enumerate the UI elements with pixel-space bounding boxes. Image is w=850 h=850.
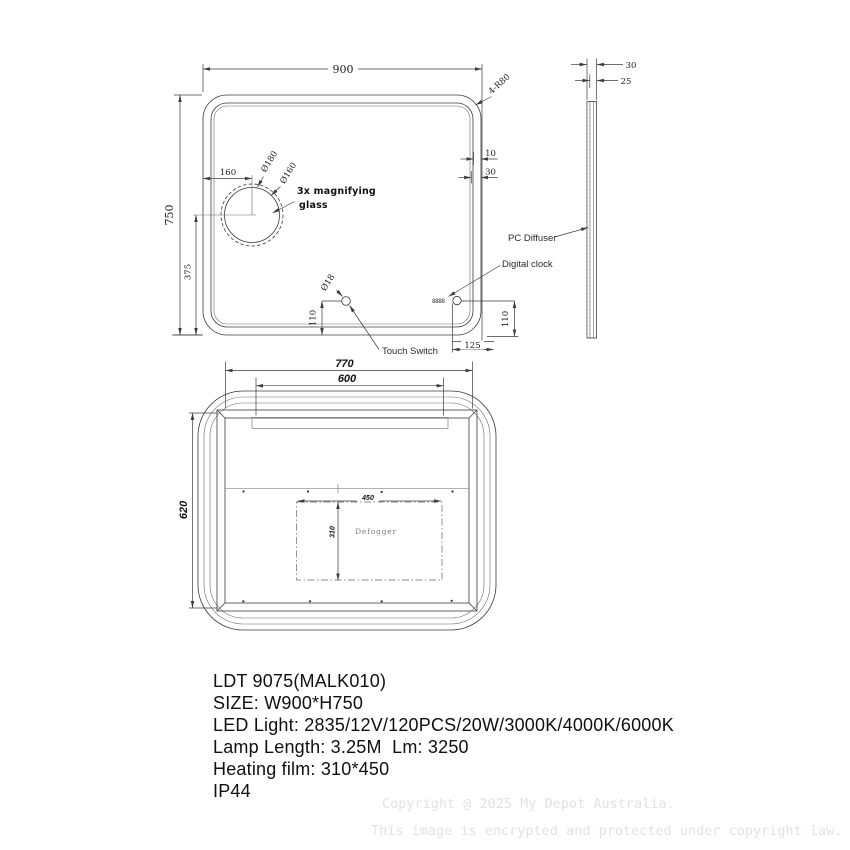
svg-text:PC Diffuser: PC Diffuser [508,233,556,244]
dim-edge-30: 30 [459,168,498,184]
defogger-label: Defogger [355,527,397,536]
svg-text:125: 125 [464,341,480,351]
svg-text:Touch Switch: Touch Switch [382,346,438,357]
dim-160: 160 [203,168,252,179]
spec-model: LDT 9075(MALK010) [213,671,386,693]
side-view-drawing: 30 25 PC Diffuser [508,59,636,339]
back-frame-outer [217,410,477,611]
back-frame-inner [225,418,469,603]
defogger-area [297,502,443,580]
watermark-line1: Copyright @ 2025 My Depot Australia. [382,796,675,812]
spec-ip: IP44 [213,781,251,803]
spec-heating: Heating film: 310*450 [213,759,389,781]
svg-text:25: 25 [621,77,632,87]
svg-text:4-R80: 4-R80 [487,72,513,96]
dim-depth-25: 25 [575,75,631,89]
back-view-drawing: 620 450 310 Defogger [178,391,496,630]
clock-display: 8888 [432,298,445,305]
screw-dots-bottom [242,600,453,603]
svg-text:310: 310 [330,526,337,538]
svg-text:600: 600 [338,373,357,385]
svg-text:110: 110 [309,310,319,326]
back-outline-inner [210,403,484,618]
svg-text:900: 900 [333,63,354,76]
dim-310: 310 [330,502,339,581]
svg-text:750: 750 [163,205,176,226]
front-view-drawing: 8888 900 750 4-R80 160 375 [163,62,553,357]
back-outline-mid [204,397,490,624]
svg-text:Digital clock: Digital clock [502,259,553,270]
touch-switch-label: Touch Switch [350,306,438,358]
digital-clock-label: Digital clock [449,259,553,297]
svg-text:110: 110 [501,311,511,327]
svg-text:10: 10 [485,149,496,159]
touch-dia-label: Ø18 [319,272,343,296]
spec-lamp: Lamp Length: 3.25M Lm: 3250 [213,737,469,759]
svg-text:30: 30 [485,168,496,178]
touch-switch-dot [342,297,351,306]
screw-dots-mid [242,490,453,493]
svg-text:30: 30 [626,61,637,71]
pc-diffuser-label: PC Diffuser [508,228,588,245]
svg-text:375: 375 [184,264,194,280]
dia-160-label: Ø160 [271,160,299,195]
magnifier-label: 3x magnifying glass [273,186,376,213]
digital-clock-dot [453,296,461,304]
svg-text:Ø160: Ø160 [278,160,300,186]
spec-size: SIZE: W900*H750 [213,693,363,715]
back-mid-line [225,484,469,494]
technical-drawing-page: 8888 900 750 4-R80 160 375 [0,0,850,850]
corner-radius-note: 4-R80 [476,72,513,105]
svg-text:glass: glass [299,200,328,211]
hanging-bracket-strip [252,418,448,429]
spec-led: LED Light: 2835/12V/120PCS/20W/3000K/400… [213,715,674,737]
svg-text:160: 160 [220,168,236,178]
svg-text:620: 620 [178,500,190,519]
dim-edge-10: 10 [461,149,498,165]
dim-touch-110: 110 [309,301,342,335]
dim-450: 450 [298,494,442,503]
svg-text:770: 770 [335,358,354,370]
svg-text:Ø180: Ø180 [259,149,281,175]
dia-180-label: Ø180 [258,149,281,187]
svg-text:Ø18: Ø18 [319,272,338,293]
svg-text:450: 450 [361,495,374,502]
frame-miter-lines [217,410,477,611]
svg-text:3x magnifying: 3x magnifying [297,186,376,197]
watermark-line2: This image is encrypted and protected un… [371,823,842,839]
dim-600: 600 [256,373,444,416]
back-outline-outer [198,391,496,630]
dim-375: 375 [172,215,203,335]
